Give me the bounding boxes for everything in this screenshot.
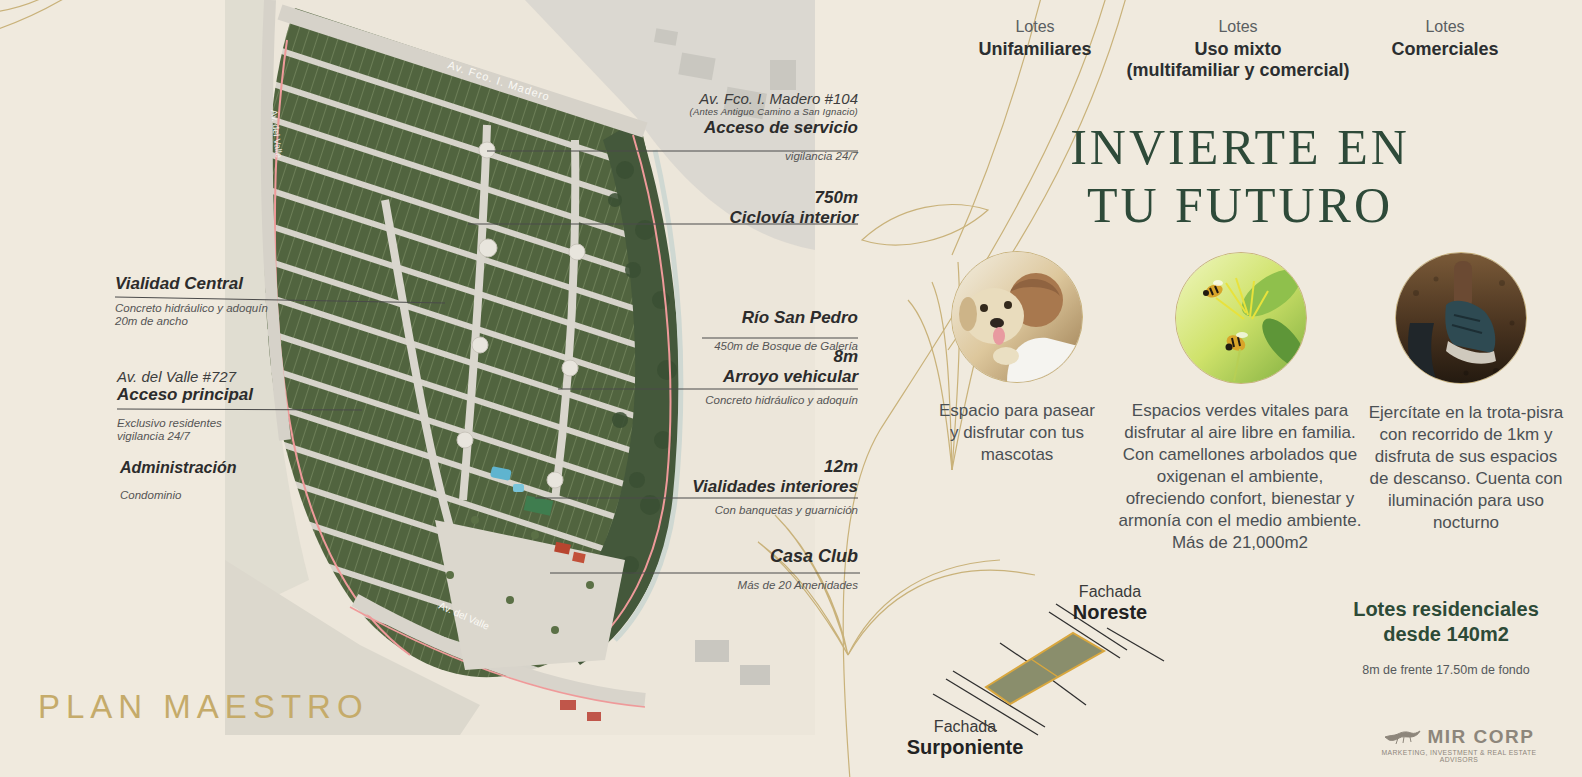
annotation-note: Con banquetas y guarnición bbox=[692, 504, 858, 517]
annotation-administracion: Administración Condominio bbox=[120, 459, 236, 503]
hero-title-line1: INVIERTE EN bbox=[1030, 118, 1450, 176]
annotation-note: vigilancia 24/7 bbox=[690, 150, 858, 163]
annotation-note: Exclusivo residentes bbox=[117, 417, 253, 430]
photo-bees-on-flowers bbox=[1175, 252, 1307, 384]
shoes-photo-illustration bbox=[1396, 253, 1526, 383]
fachada-surponiente-label: Fachada Surponiente bbox=[900, 718, 1030, 759]
lot-type-eyebrow: Lotes bbox=[1118, 18, 1358, 36]
residential-title-line2: desde 140m2 bbox=[1348, 622, 1544, 647]
annotation-title: Acceso de servicio bbox=[690, 118, 858, 138]
annotation-title: 12m bbox=[692, 457, 858, 477]
feature-text-trotapista: Ejercítate en la trota-pisra con recorri… bbox=[1368, 402, 1564, 534]
annotation-note: Más de 20 Amenidades bbox=[738, 579, 858, 592]
lot-type-name: Uso mixto bbox=[1118, 39, 1358, 60]
bees-photo-illustration bbox=[1176, 253, 1306, 383]
photo-running-shoes bbox=[1395, 252, 1527, 384]
annotation-acceso-servicio: Av. Fco. I. Madero #104 (Antes Antiguo C… bbox=[690, 90, 858, 163]
annotation-acceso-principal: Av. del Valle #727 Acceso principal Excl… bbox=[117, 368, 253, 443]
annotation-vialidad-central: Vialidad Central Concreto hidráulico y a… bbox=[115, 274, 268, 328]
residential-title-line1: Lotes residenciales bbox=[1348, 597, 1544, 622]
brand-footer: MIR CORP MARKETING, INVESTMENT & REAL ES… bbox=[1366, 726, 1552, 763]
dog-photo-illustration bbox=[952, 252, 1082, 382]
lot-type-name: Comerciales bbox=[1360, 39, 1530, 60]
hero-title-line2: TU FUTURO bbox=[1030, 176, 1450, 234]
fachada-word: Fachada bbox=[1055, 583, 1165, 601]
feature-text-mascotas: Espacio para pasear y disfrutar con tus … bbox=[936, 400, 1098, 466]
annotation-street: Av. del Valle #727 bbox=[117, 368, 253, 385]
residential-dimensions: 8m de frente 17.50m de fondo bbox=[1348, 663, 1544, 677]
annotation-note: Concreto hidráulico y adoquín bbox=[115, 302, 268, 315]
annotation-note: Concreto hidráulico y adoquín bbox=[705, 394, 858, 407]
annotation-vialidades-interiores: 12m Vialidades interiores Con banquetas … bbox=[692, 457, 858, 517]
lot-type-unifamiliares: Lotes Unifamiliares bbox=[955, 18, 1115, 60]
annotation-title-2: Arroyo vehicular bbox=[705, 367, 858, 387]
annotation-street: Av. Fco. I. Madero #104 bbox=[690, 90, 858, 107]
annotation-title: 750m bbox=[730, 188, 858, 208]
annotation-title: Casa Club bbox=[738, 546, 858, 567]
annotation-title: 8m bbox=[705, 347, 858, 367]
fachada-noreste-label: Fachada Noreste bbox=[1055, 583, 1165, 624]
fachada-word: Fachada bbox=[900, 718, 1030, 736]
lot-type-name: Unifamiliares bbox=[955, 39, 1115, 60]
annotation-note-2: vigilancia 24/7 bbox=[117, 430, 253, 443]
annotation-title: Río San Pedro bbox=[714, 308, 858, 328]
brochure-canvas: Av. Fco. I. Madero Av. del Valle Av. del… bbox=[0, 0, 1582, 777]
feature-text-espacios-verdes: Espacios verdes vitales para disfrutar a… bbox=[1116, 400, 1364, 554]
fachada-direction: Noreste bbox=[1055, 601, 1165, 624]
annotation-title-2: Ciclovía interior bbox=[730, 208, 858, 228]
lot-type-eyebrow: Lotes bbox=[955, 18, 1115, 36]
photo-dog-with-owner bbox=[951, 251, 1083, 383]
annotation-title: Vialidad Central bbox=[115, 274, 268, 294]
hero-title: INVIERTE EN TU FUTURO bbox=[1030, 118, 1450, 234]
lot-type-uso-mixto: Lotes Uso mixto (multifamiliar y comerci… bbox=[1118, 18, 1358, 81]
plan-maestro-title: PLAN MAESTRO bbox=[38, 688, 369, 726]
annotation-title: Acceso principal bbox=[117, 385, 253, 405]
annotation-ciclovia: 750m Ciclovía interior bbox=[730, 188, 858, 227]
annotation-arroyo-vehicular: 8m Arroyo vehicular Concreto hidráulico … bbox=[705, 347, 858, 407]
annotation-note: Condominio bbox=[120, 489, 236, 502]
cheetah-logo-icon bbox=[1384, 727, 1424, 747]
annotation-street-alt: (Antes Antiguo Camino a San Ignacio) bbox=[690, 107, 858, 118]
annotation-note-2: 20m de ancho bbox=[115, 315, 268, 328]
lot-type-comerciales: Lotes Comerciales bbox=[1360, 18, 1530, 60]
lot-type-sub: (multifamiliar y comercial) bbox=[1118, 60, 1358, 81]
brand-tagline: MARKETING, INVESTMENT & REAL ESTATE ADVI… bbox=[1366, 749, 1552, 763]
annotation-title-2: Vialidades interiores bbox=[692, 477, 858, 497]
residential-lots-callout: Lotes residenciales desde 140m2 8m de fr… bbox=[1348, 597, 1544, 677]
brand-name: MIR CORP bbox=[1428, 726, 1535, 748]
annotation-title: Administración bbox=[120, 459, 236, 477]
lot-type-eyebrow: Lotes bbox=[1360, 18, 1530, 36]
fachada-direction: Surponiente bbox=[900, 736, 1030, 759]
annotation-casa-club: Casa Club Más de 20 Amenidades bbox=[738, 546, 858, 592]
